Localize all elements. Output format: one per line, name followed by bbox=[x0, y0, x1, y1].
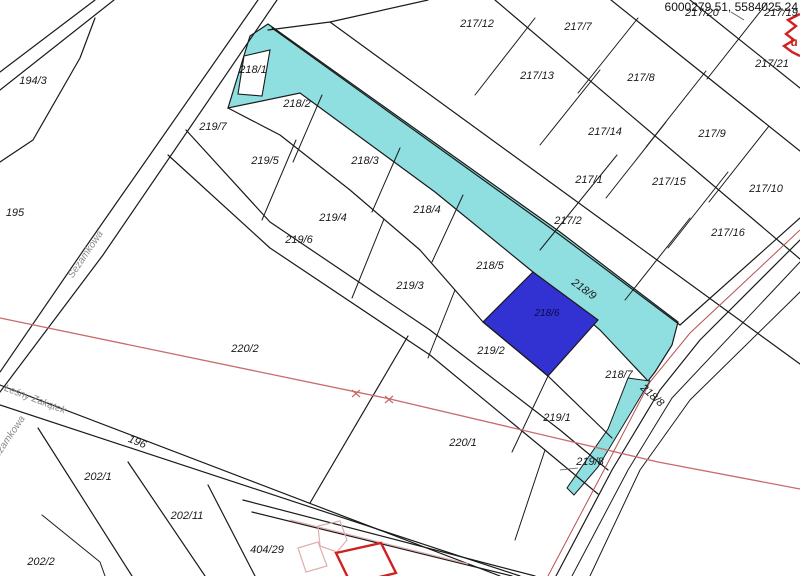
parcel-label-217-8: 217/8 bbox=[626, 72, 655, 84]
parcel-label-218-1: 218/1 bbox=[238, 64, 267, 76]
red-building-outline bbox=[336, 543, 396, 576]
parcel-label-219-8: 219/8 bbox=[575, 456, 604, 468]
parcel-label-404-29: 404/29 bbox=[250, 544, 284, 556]
parcel-label-218-3: 218/3 bbox=[350, 155, 379, 167]
parcel-label-219-2: 219/2 bbox=[476, 345, 505, 357]
parcel-label-217-15: 217/15 bbox=[651, 176, 687, 188]
parcel-label-218-2: 218/2 bbox=[282, 98, 311, 110]
map-labels: 194/3195196202/1202/11202/2404/29218/121… bbox=[0, 7, 798, 568]
parcel-label-217-20: 217/20 bbox=[684, 7, 720, 19]
parcel-label-217-1: 217/1 bbox=[574, 174, 603, 186]
street-name-label-2: Sezamkowa bbox=[0, 414, 28, 466]
street-name-label-0: Sezamkowa bbox=[66, 229, 106, 281]
parcel-label-219-3: 219/3 bbox=[395, 280, 424, 292]
red-boundary-line bbox=[0, 318, 800, 489]
parcel-label-202-11: 202/11 bbox=[170, 510, 204, 522]
parcel-label-218-5: 218/5 bbox=[475, 260, 504, 272]
parcel-label-217-2: 217/2 bbox=[553, 215, 582, 227]
parcel-label-217-9: 217/9 bbox=[697, 128, 726, 140]
parcel-label-195: 195 bbox=[6, 207, 25, 219]
parcel-label-219-4: 219/4 bbox=[318, 212, 347, 224]
parcel-label-217-21: 217/21 bbox=[754, 58, 789, 70]
parcel-label-219-7: 219/7 bbox=[198, 121, 227, 133]
parcel-label-218-4: 218/4 bbox=[412, 204, 441, 216]
parcel-label-219-6: 219/6 bbox=[284, 234, 313, 246]
highlighted-road-parcel-218-9[interactable] bbox=[228, 24, 678, 381]
parcel-label-219-5: 219/5 bbox=[250, 155, 279, 167]
parcel-label-217-12: 217/12 bbox=[459, 18, 494, 30]
parcel-label-220-1: 220/1 bbox=[448, 437, 477, 449]
parcel-label-194-3: 194/3 bbox=[19, 75, 47, 87]
cadastral-map-viewport[interactable]: 6000279.51, 5584025.24 194/3195196202/12… bbox=[0, 0, 800, 576]
map-canvas[interactable]: 6000279.51, 5584025.24 194/3195196202/12… bbox=[0, 0, 800, 576]
parcel-label-202-2: 202/2 bbox=[26, 556, 55, 568]
parcel-label-219-1: 219/1 bbox=[542, 412, 571, 424]
parcel-label-218-6: 218/6 bbox=[533, 308, 559, 319]
parcel-label-217-16: 217/16 bbox=[710, 227, 746, 239]
parcel-label-218-7: 218/7 bbox=[604, 369, 633, 381]
parcel-label-217-13: 217/13 bbox=[519, 70, 555, 82]
parcel-label-217-14: 217/14 bbox=[587, 126, 622, 138]
parcel-label-217-7: 217/7 bbox=[563, 21, 592, 33]
street-name-label-1: Leśny Zakątek bbox=[3, 383, 69, 417]
parcel-label-202-1: 202/1 bbox=[83, 471, 112, 483]
parcel-label-217-19: 217/19 bbox=[763, 7, 798, 19]
building-annotation-0: u bbox=[790, 35, 797, 49]
parcel-label-196: 196 bbox=[126, 433, 148, 451]
parcel-label-217-10: 217/10 bbox=[748, 183, 784, 195]
parcel-label-220-2: 220/2 bbox=[230, 343, 259, 355]
